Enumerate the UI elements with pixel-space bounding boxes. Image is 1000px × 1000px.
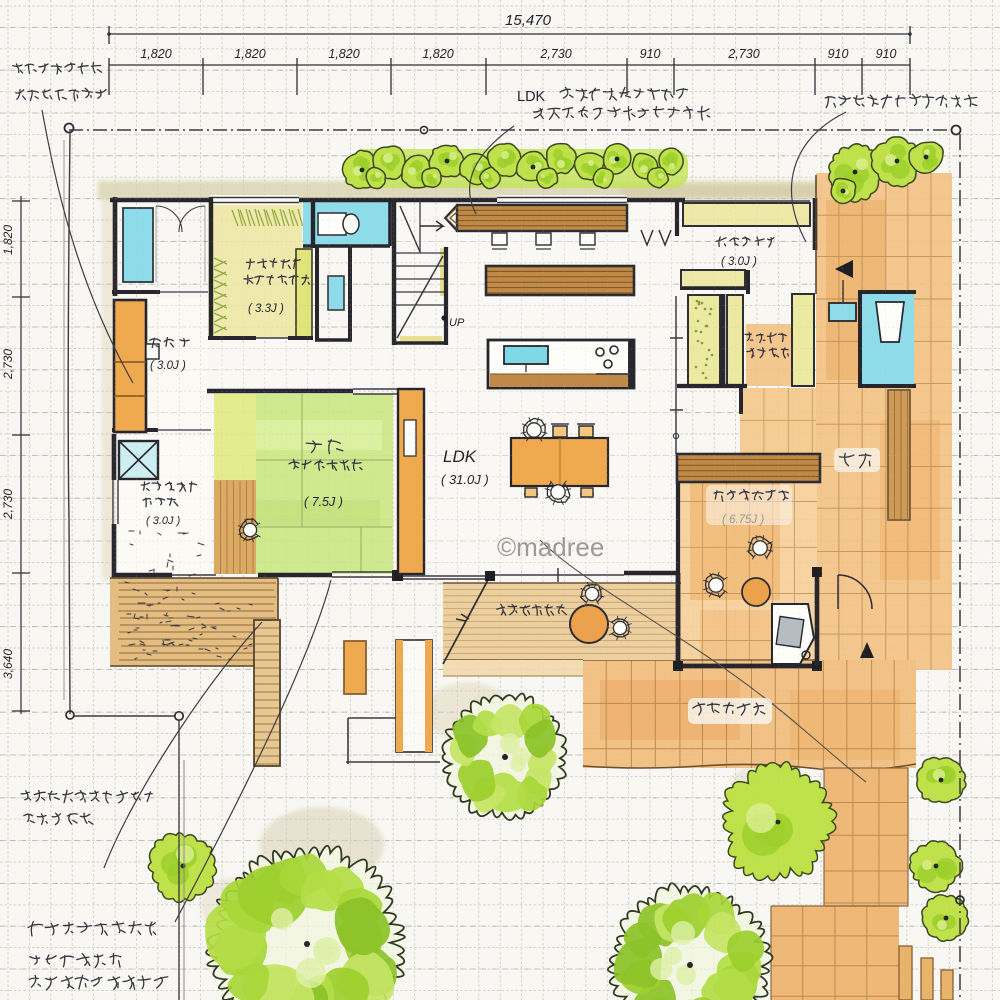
svg-text:( 3.0J ): ( 3.0J ) [150,360,186,372]
svg-text:( 3.3J ): ( 3.3J ) [248,303,284,315]
svg-text:( 7.5J ): ( 7.5J ) [304,495,343,509]
svg-text:15,470: 15,470 [505,12,552,29]
svg-text:( 3.0J ): ( 3.0J ) [146,515,181,527]
svg-text:©madree: ©madree [497,532,604,562]
svg-text:LDK: LDK [443,447,477,466]
svg-text:( 31.0J ): ( 31.0J ) [441,472,489,487]
svg-text:( 3.0J ): ( 3.0J ) [721,256,757,268]
